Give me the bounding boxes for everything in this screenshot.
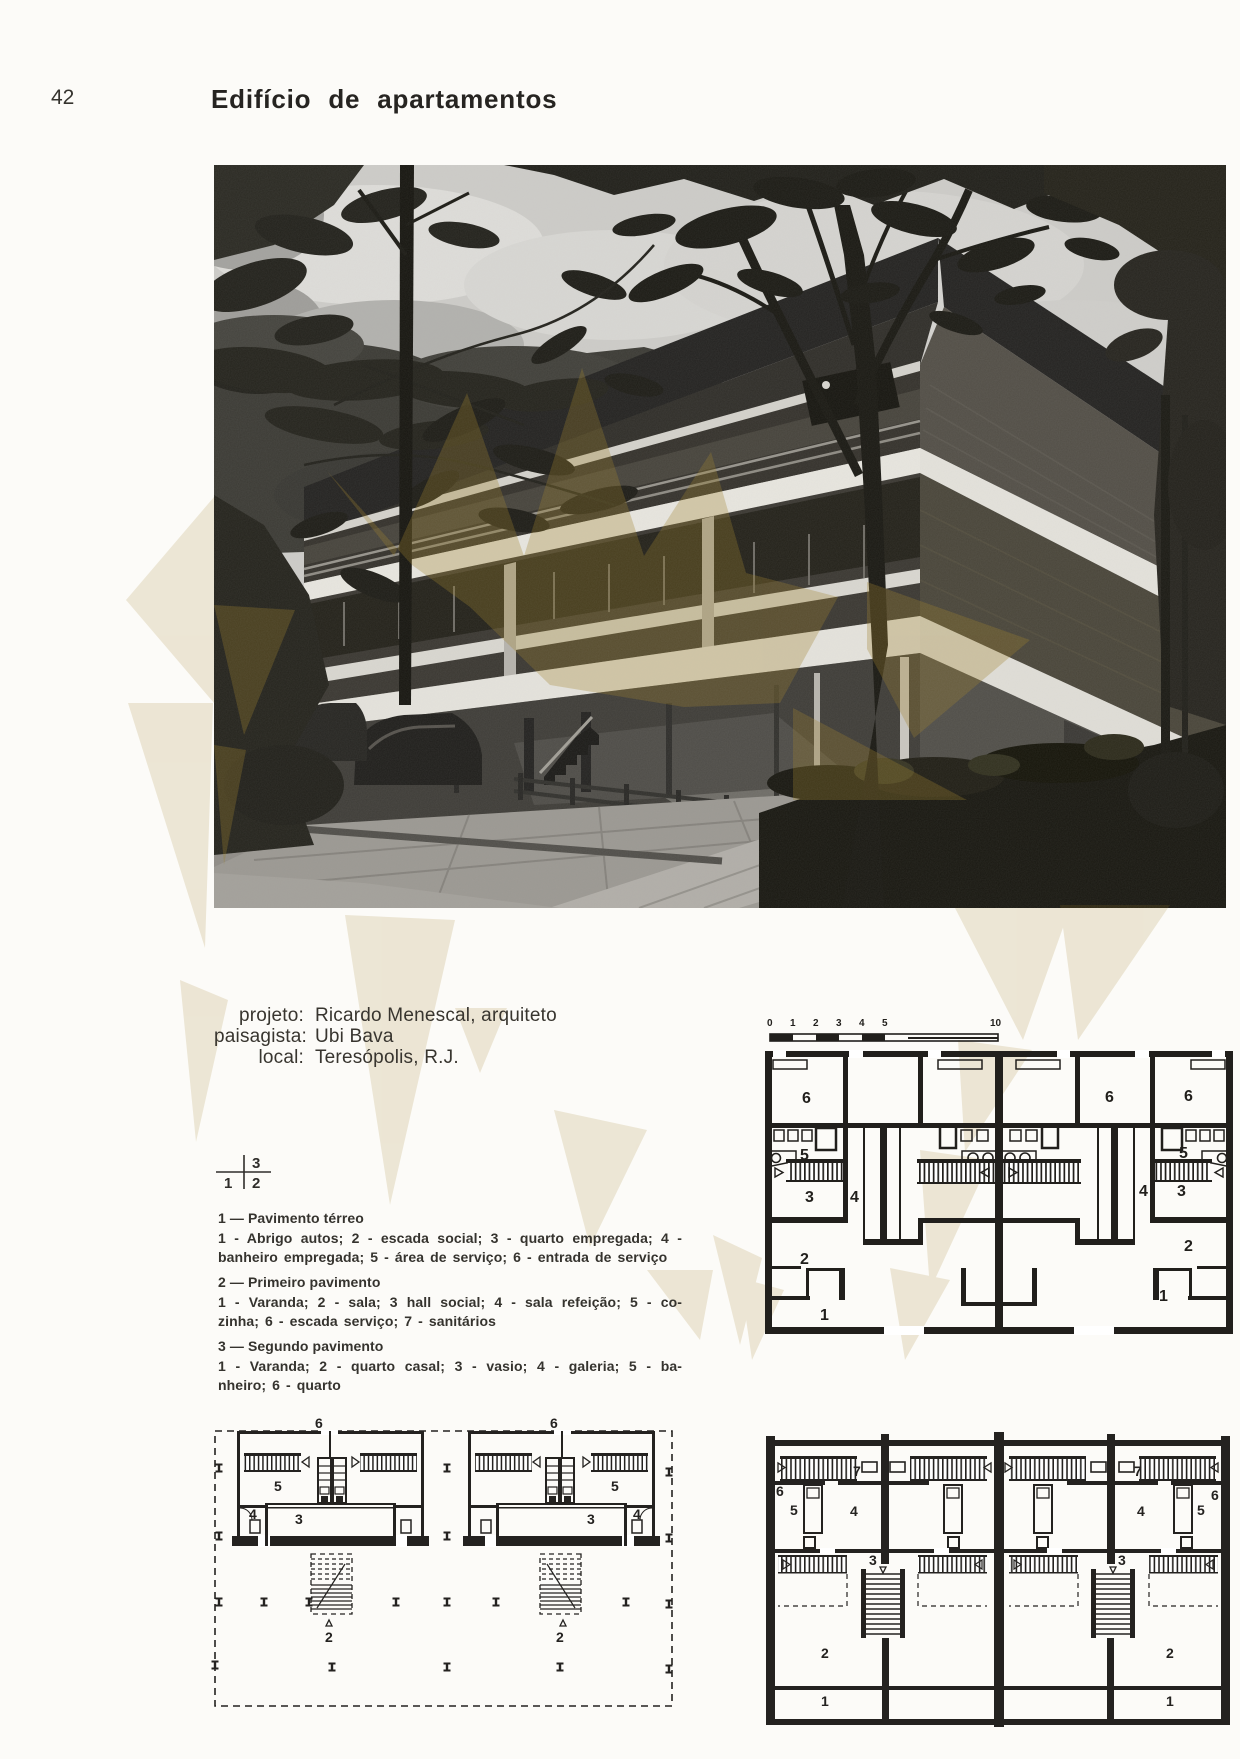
svg-text:6: 6 [1184,1088,1193,1105]
svg-text:3: 3 [836,1018,842,1029]
svg-text:3: 3 [1177,1183,1186,1200]
svg-text:1: 1 [1166,1693,1174,1709]
svg-text:3: 3 [1118,1552,1126,1568]
svg-text:6: 6 [776,1483,784,1499]
svg-text:3: 3 [295,1511,303,1527]
svg-text:4: 4 [1137,1503,1145,1519]
svg-text:1: 1 [821,1693,829,1709]
svg-text:6: 6 [550,1415,558,1431]
svg-text:5: 5 [611,1478,619,1494]
svg-text:5: 5 [882,1018,888,1029]
svg-text:2: 2 [813,1018,819,1029]
svg-text:2: 2 [821,1645,829,1661]
svg-text:2: 2 [252,1175,260,1192]
svg-text:1: 1 [224,1175,232,1192]
svg-text:4: 4 [850,1189,859,1206]
svg-text:4: 4 [249,1506,257,1522]
svg-text:2: 2 [800,1251,809,1268]
svg-text:1: 1 [820,1307,829,1324]
svg-text:5: 5 [1197,1502,1205,1518]
svg-text:4: 4 [1139,1183,1148,1200]
svg-text:2: 2 [1184,1238,1193,1255]
svg-text:7: 7 [853,1463,861,1479]
svg-text:10: 10 [990,1018,1002,1029]
svg-text:3: 3 [587,1511,595,1527]
svg-text:2: 2 [1166,1645,1174,1661]
svg-text:3: 3 [805,1189,814,1206]
svg-text:3: 3 [869,1552,877,1568]
svg-text:1: 1 [1159,1288,1168,1305]
svg-text:3: 3 [252,1155,260,1172]
svg-text:5: 5 [274,1478,282,1494]
svg-text:7: 7 [1134,1463,1142,1479]
svg-text:4: 4 [850,1503,858,1519]
svg-text:1: 1 [790,1018,796,1029]
svg-text:5: 5 [790,1502,798,1518]
svg-text:2: 2 [556,1629,564,1645]
svg-text:0: 0 [767,1018,773,1029]
svg-text:6: 6 [1105,1089,1114,1106]
svg-text:5: 5 [800,1147,809,1164]
svg-text:6: 6 [315,1415,323,1431]
svg-text:6: 6 [802,1090,811,1107]
svg-text:2: 2 [325,1629,333,1645]
svg-text:4: 4 [633,1506,641,1522]
svg-text:4: 4 [859,1018,865,1029]
svg-text:6: 6 [1211,1487,1219,1503]
svg-text:5: 5 [1179,1145,1188,1162]
